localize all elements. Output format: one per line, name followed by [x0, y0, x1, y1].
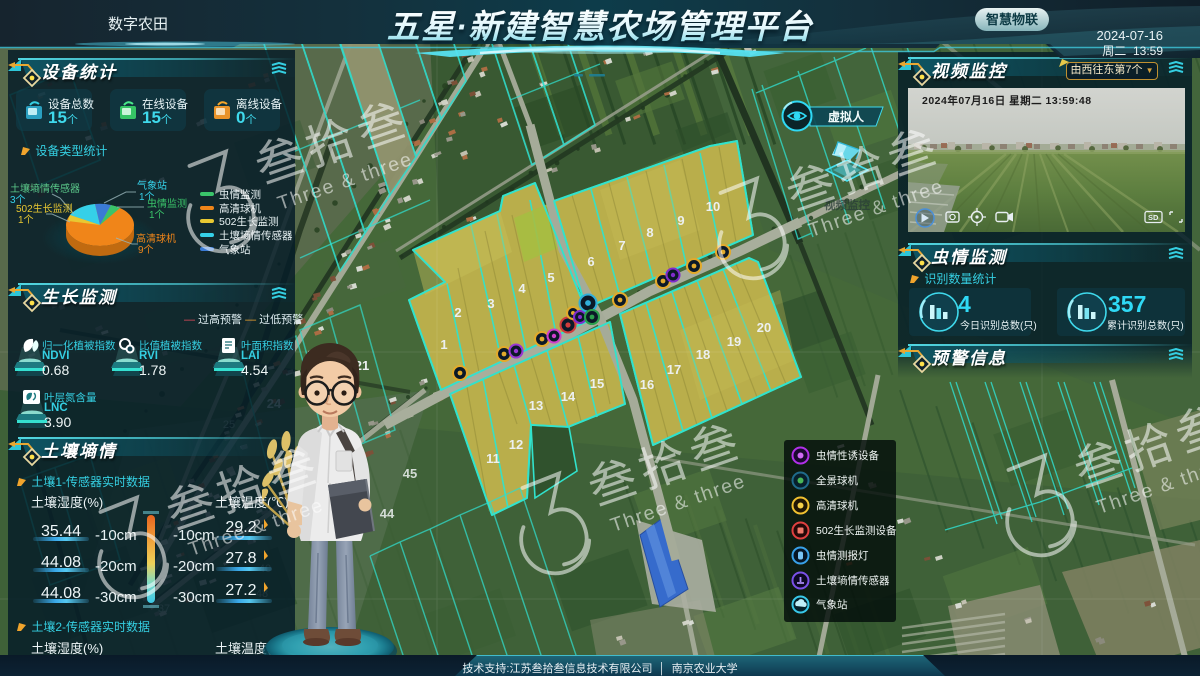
svg-text:土壤墒情传感器: 土壤墒情传感器	[219, 229, 293, 242]
svg-text:1个: 1个	[18, 214, 34, 226]
svg-text:虫情监测: 虫情监测	[219, 188, 261, 201]
svg-text:虫情监测: 虫情监测	[147, 197, 187, 210]
svg-text:SD: SD	[1148, 213, 1159, 222]
svg-text:502生长监测: 502生长监测	[219, 215, 279, 228]
svg-text:气象站: 气象站	[219, 243, 251, 256]
svg-text:502生长监测: 502生长监测	[16, 202, 73, 215]
svg-text:气象站: 气象站	[137, 180, 167, 192]
svg-text:高清球机: 高清球机	[136, 232, 176, 245]
svg-text:视频监控: 视频监控	[824, 198, 870, 212]
svg-text:2024年07月16日 星期二 13:59:48: 2024年07月16日 星期二 13:59:48	[922, 94, 1092, 107]
svg-text:虚拟人: 虚拟人	[828, 109, 865, 124]
svg-text:高清球机: 高清球机	[219, 202, 261, 215]
svg-text:土壤墒情传感器: 土壤墒情传感器	[10, 182, 80, 195]
svg-text:1个: 1个	[149, 209, 165, 221]
svg-text:9个: 9个	[138, 244, 154, 256]
